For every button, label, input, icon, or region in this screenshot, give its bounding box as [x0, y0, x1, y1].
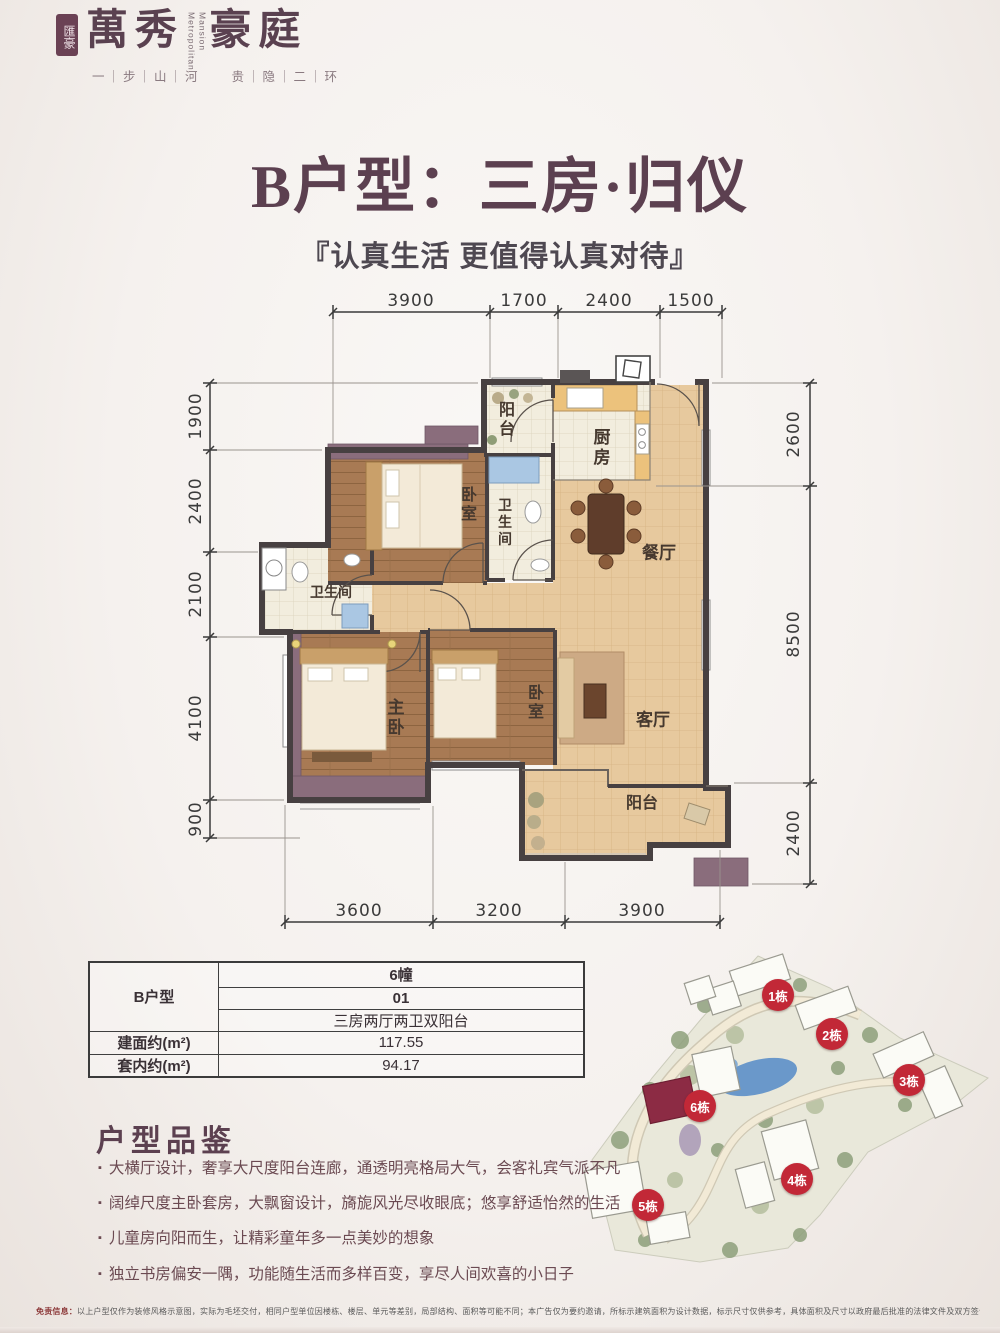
spec-building: 6幢	[219, 962, 585, 987]
brand-name-en-line2: Mansion	[197, 12, 208, 68]
disclaimer: 免责信息：以上户型仅作为装修风格示意图，实际为毛坯交付，相同户型单位因楼栋、楼层…	[36, 1306, 980, 1317]
brand-name-cn-right: 豪庭	[209, 8, 307, 54]
brand-seal: 匯豪	[56, 14, 78, 56]
spec-gross-value: 117.55	[219, 1031, 585, 1054]
disclaimer-label: 免责信息：	[36, 1307, 77, 1316]
dim-right-1: 2600	[784, 410, 804, 457]
dim-top-1: 3900	[387, 291, 434, 311]
room-label-balcony-top: 阳台	[492, 401, 516, 439]
brand-name-en: Metropolitan Mansion	[186, 12, 207, 68]
brand-logo: 匯豪 萬秀 Metropolitan Mansion 豪庭	[56, 8, 307, 68]
poster-page: 匯豪 萬秀 Metropolitan Mansion 豪庭 一｜步｜山｜河 贵｜…	[0, 0, 1000, 1333]
room-label-living: 客厅	[636, 706, 670, 731]
appreciation-item: ▪儿童房向阳而生，让精彩童年多一点美妙的想象	[98, 1226, 434, 1248]
spec-table: B户型 6幢 01 三房两厅两卫双阳台 建面约(m²) 117.55 套内约(m…	[88, 961, 585, 1078]
spec-net-value: 94.17	[219, 1054, 585, 1077]
brand-tagline: 一｜步｜山｜河 贵｜隐｜二｜环	[92, 66, 340, 85]
dim-top-2: 1700	[500, 291, 547, 311]
dim-top-3: 2400	[585, 291, 632, 311]
siteplan-badge-building-2: 2栋	[816, 1018, 848, 1050]
dim-right-2: 8500	[784, 610, 804, 657]
page-title: B户型：三房·归仪	[0, 138, 1000, 225]
dim-left-1: 1900	[186, 392, 206, 439]
bullet-icon: ▪	[98, 1268, 102, 1280]
bullet-icon: ▪	[98, 1162, 102, 1174]
room-label-bath-left: 卫生间	[310, 582, 352, 602]
dim-left-5: 900	[186, 801, 206, 836]
spec-unit-label: B户型	[89, 962, 219, 1031]
dim-left-3: 2100	[186, 570, 206, 617]
appreciation-item: ▪独立书房偏安一隅，功能随生活而多样百变，享尽人间欢喜的小日子	[98, 1262, 574, 1284]
dim-left-2: 2400	[186, 477, 206, 524]
room-label-master: 主卧	[382, 698, 407, 738]
brand-name-cn-left: 萬秀	[86, 8, 184, 54]
dim-right-3: 2400	[784, 809, 804, 856]
room-label-dining: 餐厅	[642, 539, 676, 564]
appreciation-heading: 户型品鉴	[96, 1116, 236, 1160]
room-label-bedroom-bottom: 卧室	[521, 684, 545, 722]
siteplan-badge-building-5: 5栋	[632, 1189, 664, 1221]
bullet-icon: ▪	[98, 1197, 102, 1209]
dim-bottom-2: 3200	[475, 901, 522, 921]
spec-layout: 三房两厅两卫双阳台	[219, 1009, 585, 1031]
room-label-balcony-bottom: 阳台	[626, 789, 658, 813]
brand-name-en-line1: Metropolitan	[186, 12, 197, 68]
spec-net-label: 套内约(m²)	[89, 1054, 219, 1077]
siteplan-badge-building-1: 1栋	[762, 979, 794, 1011]
spec-gross-label: 建面约(m²)	[89, 1031, 219, 1054]
room-label-bedroom-top: 卧室	[454, 486, 478, 524]
siteplan-badge-building-4: 4栋	[781, 1163, 813, 1195]
appreciation-item: ▪阔绰尺度主卧套房，大飘窗设计，旖旎风光尽收眼底；悠享舒适怡然的生活	[98, 1191, 620, 1213]
disclaimer-text: 以上户型仅作为装修风格示意图，实际为毛坯交付，相同户型单位因楼栋、楼层、单元等差…	[77, 1307, 980, 1316]
bullet-icon: ▪	[98, 1232, 102, 1244]
dim-bottom-1: 3600	[335, 901, 382, 921]
spec-unit-no: 01	[219, 987, 585, 1009]
siteplan-badge-building-6: 6栋	[684, 1090, 716, 1122]
dim-left-4: 4100	[186, 694, 206, 741]
room-label-bath-mid: 卫生间	[495, 498, 515, 549]
dim-top-4: 1500	[667, 291, 714, 311]
page-bottom-edge	[0, 1327, 1000, 1333]
siteplan-badge-building-3: 3栋	[893, 1064, 925, 1096]
room-label-kitchen: 厨房	[588, 428, 613, 468]
appreciation-item: ▪大横厅设计，奢享大尺度阳台连廊，通透明亮格局大气，会客礼宾气派不凡	[98, 1156, 620, 1178]
page-subtitle: 『认真生活 更值得认真对待』	[0, 233, 1000, 275]
dim-bottom-3: 3900	[618, 901, 665, 921]
